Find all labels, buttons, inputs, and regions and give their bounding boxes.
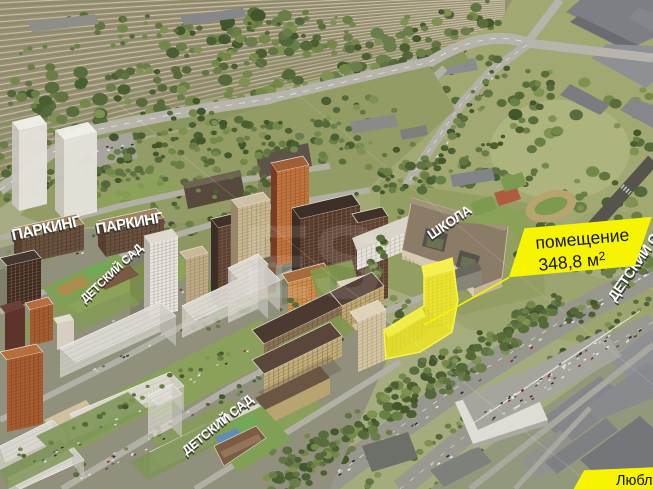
svg-text:Люблинская: Люблинская (616, 473, 653, 489)
svg-text:ЕS: ЕS (242, 204, 382, 321)
